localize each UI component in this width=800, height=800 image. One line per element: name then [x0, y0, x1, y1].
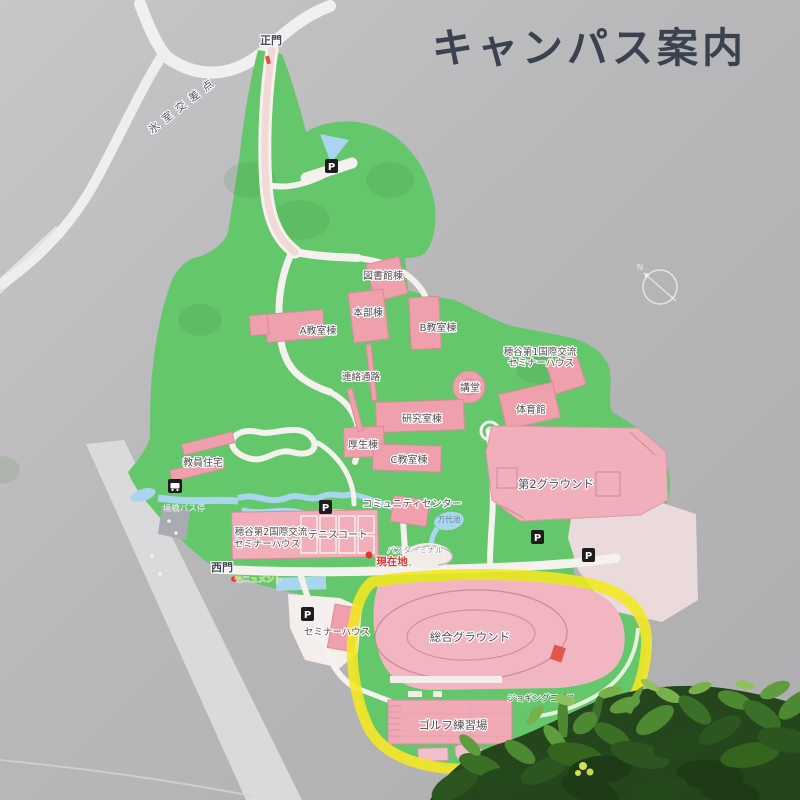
bldg-a-label: A教室棟: [300, 324, 337, 337]
parking-icon: P: [301, 607, 314, 621]
corridor-label: 連絡通路: [342, 371, 381, 383]
bus-stop-icon: [168, 479, 182, 493]
svg-text:N: N: [637, 263, 644, 273]
west-gate-label: 西門: [211, 561, 233, 574]
bus-stop-label: 境橋バス停: [163, 503, 206, 514]
welfare-label: 厚生棟: [348, 438, 378, 451]
bldg-c-label: C教室棟: [391, 453, 428, 466]
current-location-label: 現在地: [376, 555, 408, 568]
svg-text:P: P: [304, 610, 311, 621]
hotani1-label-2: セミナーハウス: [508, 358, 574, 369]
mandai-pond-label: 万代池: [438, 514, 461, 524]
bldg-b-label: B教室棟: [420, 321, 457, 334]
campus-map: P P P P P キャンパス案内 正門 氷室交差点 図書館棟 本部棟 A教室棟…: [0, 0, 800, 800]
library-label: 図書館棟: [363, 269, 403, 282]
campus-map-sign-photo: P P P P P キャンパス案内 正門 氷室交差点 図書館棟 本部棟 A教室棟…: [0, 0, 800, 800]
main-ground-label: 総合グラウンド: [430, 630, 511, 644]
headquarters-label: 本部棟: [353, 306, 383, 319]
ground-no2-field: [486, 426, 668, 521]
main-gate-label: 正門: [260, 34, 282, 47]
hotani1-label-1: 穂谷第1国際交流: [504, 346, 577, 358]
tennis-label: テニスコート: [308, 530, 368, 541]
page-title: キャンパス案内: [432, 24, 747, 72]
parking-icon: P: [582, 548, 595, 562]
svg-text:P: P: [322, 503, 329, 514]
monument-label: モニュメント: [234, 575, 282, 584]
research-label: 研究室棟: [402, 412, 442, 425]
auditorium-label: 講堂: [460, 381, 480, 394]
svg-text:P: P: [534, 533, 541, 544]
ground2-label: 第2グラウンド: [518, 477, 594, 491]
community-center-label: コミュニティセンター: [362, 498, 461, 510]
svg-text:P: P: [585, 551, 592, 562]
bus-terminal-label: バスターミナル: [387, 546, 443, 555]
seminar-house-label: セミナーハウス: [304, 627, 370, 638]
parking-icon: P: [325, 159, 338, 173]
hotani2-label-1: 穂谷第2国際交流: [235, 526, 308, 538]
hotani2-label-2: セミナーハウス: [234, 539, 300, 550]
svg-text:P: P: [328, 162, 335, 173]
faculty-housing-label: 教員住宅: [183, 456, 223, 469]
gym-label: 体育館: [516, 403, 546, 416]
current-location-dot: [366, 552, 373, 559]
parking-icon: P: [531, 530, 544, 544]
parking-icon: P: [319, 500, 332, 514]
golf-range-label: ゴルフ練習場: [419, 718, 488, 732]
